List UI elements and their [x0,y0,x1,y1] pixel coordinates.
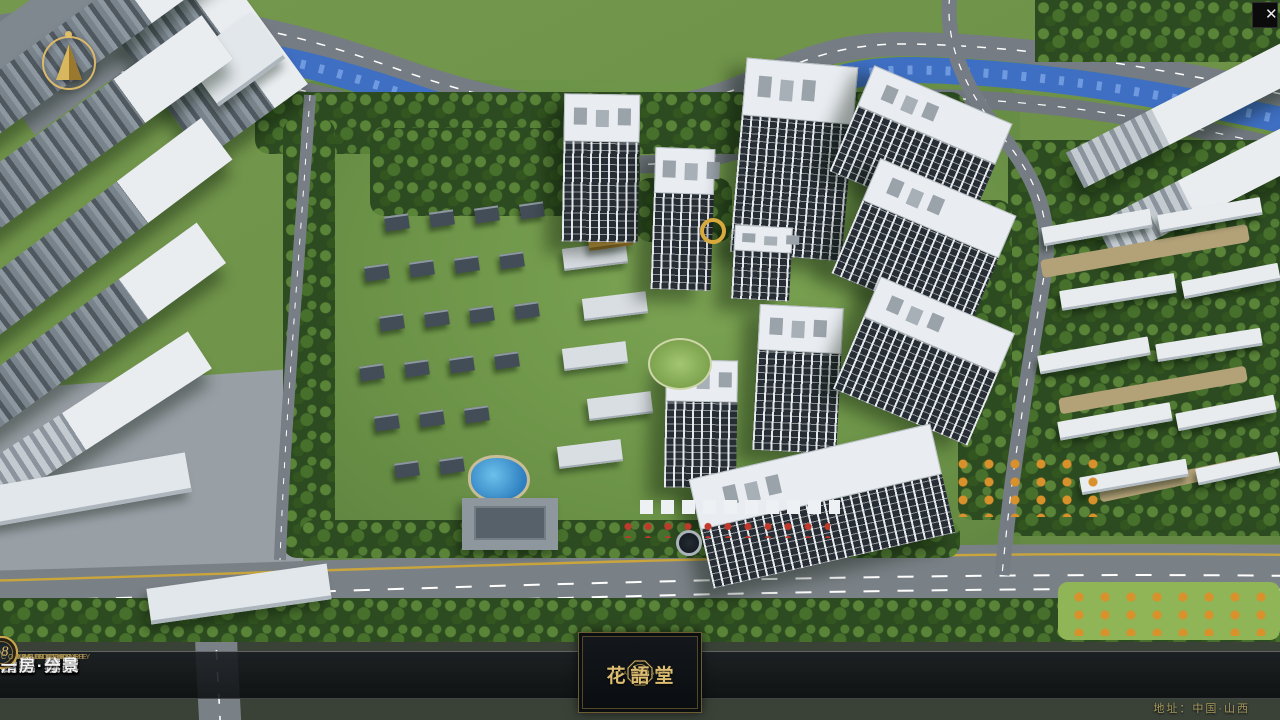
entrance-hall-roof [474,506,546,540]
autumn-trees [1066,588,1272,636]
autumn-trees [950,455,1108,517]
nav-label-en: COMMUNITY [1,654,62,661]
close-button[interactable]: ✕ [1252,2,1278,28]
entrance-plaza-disc [676,530,702,556]
central-lawn [648,338,712,390]
compass-knob [65,31,72,38]
compass-icon [42,36,96,90]
gold-ring-sculpture [700,218,726,244]
flower-shrubs [618,520,830,538]
swimming-pool [468,455,530,503]
project-logo[interactable]: 花語堂 HUA YU TANG [578,632,702,713]
compass-needle-shadow [69,44,82,80]
highrise-tower [752,304,844,454]
address-text: 地址：中国·山西 [1153,700,1250,716]
entrance-pergola [640,500,840,514]
highrise-tower [562,93,641,242]
close-icon: ✕ [1265,3,1278,27]
midrise-tower [731,225,793,302]
logo-subtitle: HUA YU TANG [612,671,667,677]
sales-presentation-screen: ✕ o1 品牌·介绍 BRAND SUPPORT o2 区位·价值 LOCATI… [0,0,1280,720]
